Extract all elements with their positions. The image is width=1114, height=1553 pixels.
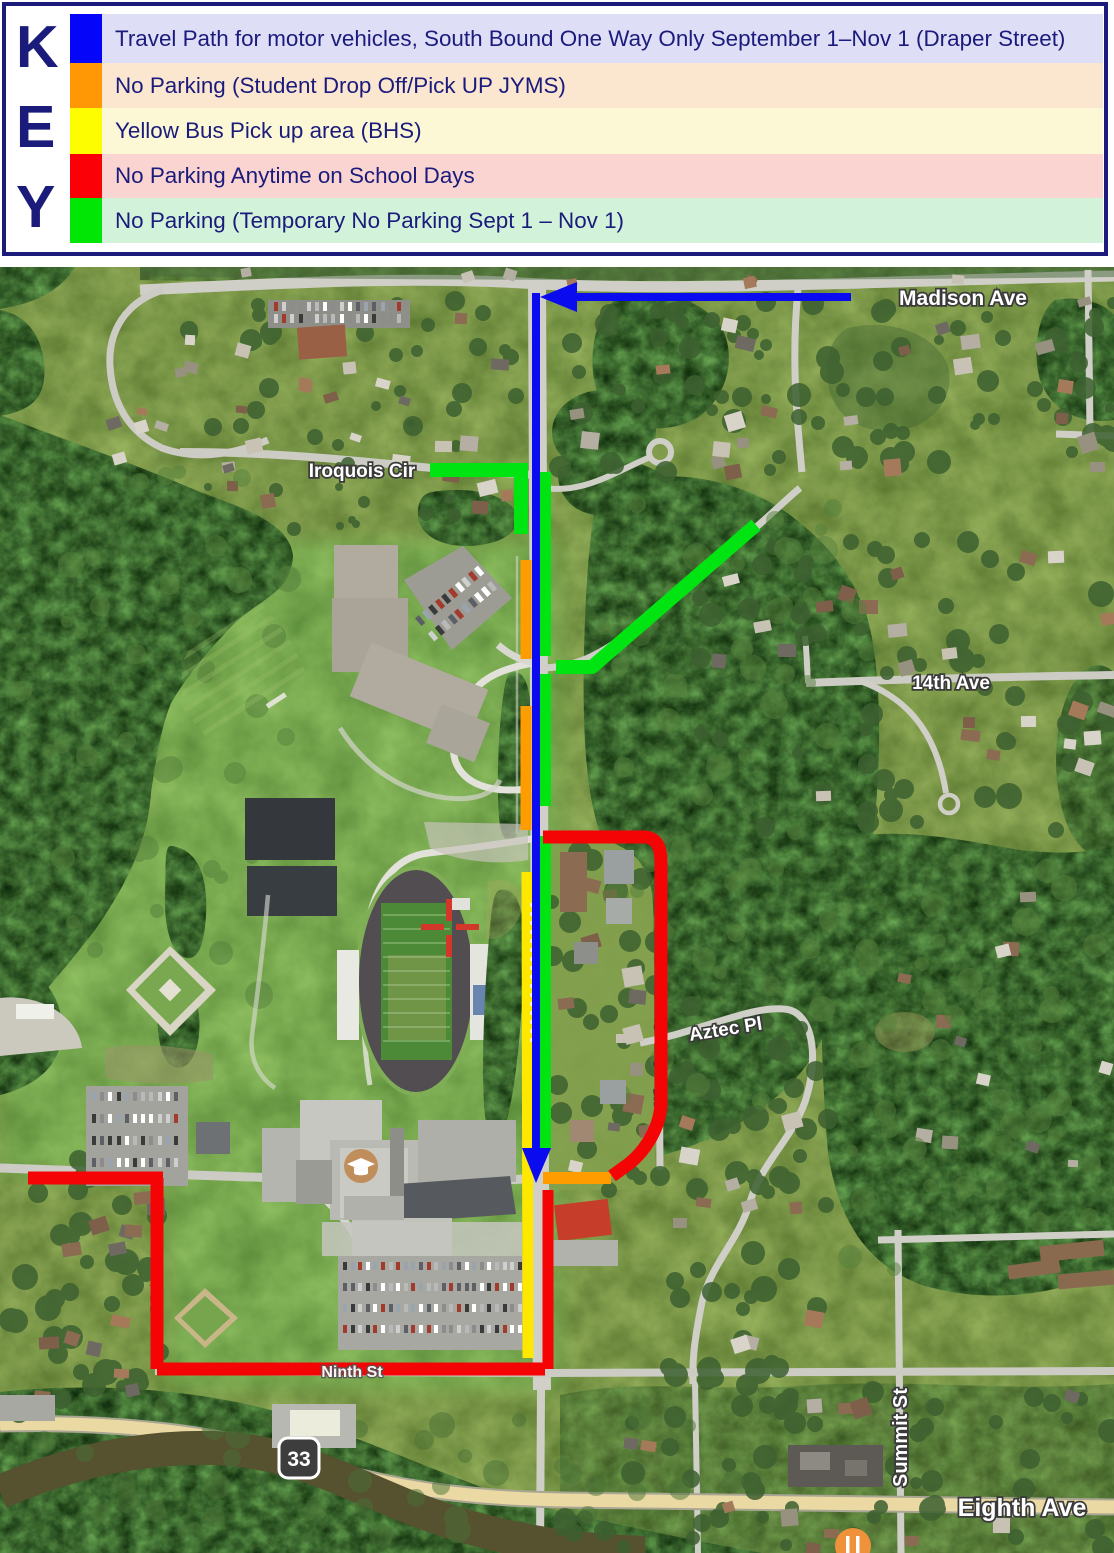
svg-text:Madison Ave: Madison Ave — [899, 287, 1027, 310]
svg-text:Summit St: Summit St — [890, 1388, 912, 1487]
svg-text:Iroquois Cir: Iroquois Cir — [309, 461, 416, 482]
svg-text:14th Ave: 14th Ave — [912, 673, 990, 694]
svg-text:Ninth St: Ninth St — [321, 1364, 383, 1381]
svg-text:Eighth Ave: Eighth Ave — [958, 1494, 1087, 1522]
svg-text:33: 33 — [287, 1448, 310, 1471]
